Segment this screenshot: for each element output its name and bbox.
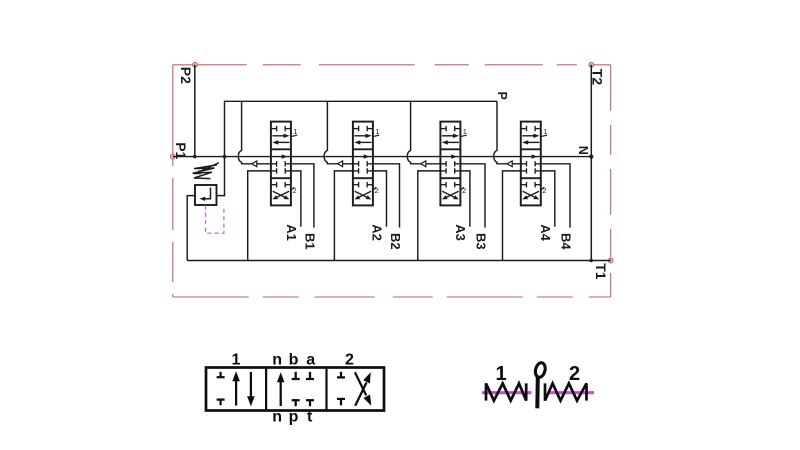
svg-text:1: 1 [232, 352, 241, 369]
svg-text:A1: A1 [284, 224, 299, 241]
svg-text:T1: T1 [593, 263, 609, 280]
svg-text:B1: B1 [302, 233, 317, 250]
svg-text:1: 1 [463, 127, 467, 136]
svg-text:a: a [306, 352, 315, 369]
svg-text:2: 2 [462, 186, 466, 195]
svg-text:n: n [272, 352, 282, 369]
svg-text:P2: P2 [178, 67, 194, 84]
svg-text:n: n [272, 408, 282, 425]
svg-text:2: 2 [569, 363, 580, 385]
svg-text:A2: A2 [370, 224, 385, 241]
svg-text:A4: A4 [538, 224, 553, 241]
svg-text:2: 2 [345, 352, 354, 369]
svg-text:2: 2 [542, 186, 546, 195]
svg-text:N: N [576, 146, 590, 155]
svg-text:2: 2 [293, 186, 297, 195]
svg-text:1: 1 [375, 127, 379, 136]
svg-text:1: 1 [293, 127, 297, 136]
svg-text:t: t [307, 408, 313, 425]
svg-text:p: p [289, 408, 299, 425]
svg-text:2: 2 [375, 186, 379, 195]
svg-text:B3: B3 [473, 233, 488, 250]
svg-text:T2: T2 [590, 69, 606, 86]
svg-text:A3: A3 [453, 224, 468, 241]
svg-text:1: 1 [495, 363, 506, 385]
svg-text:b: b [289, 352, 299, 369]
svg-text:P: P [495, 92, 509, 100]
svg-text:B4: B4 [558, 233, 573, 250]
svg-text:B2: B2 [388, 233, 403, 250]
svg-text:1: 1 [543, 127, 547, 136]
